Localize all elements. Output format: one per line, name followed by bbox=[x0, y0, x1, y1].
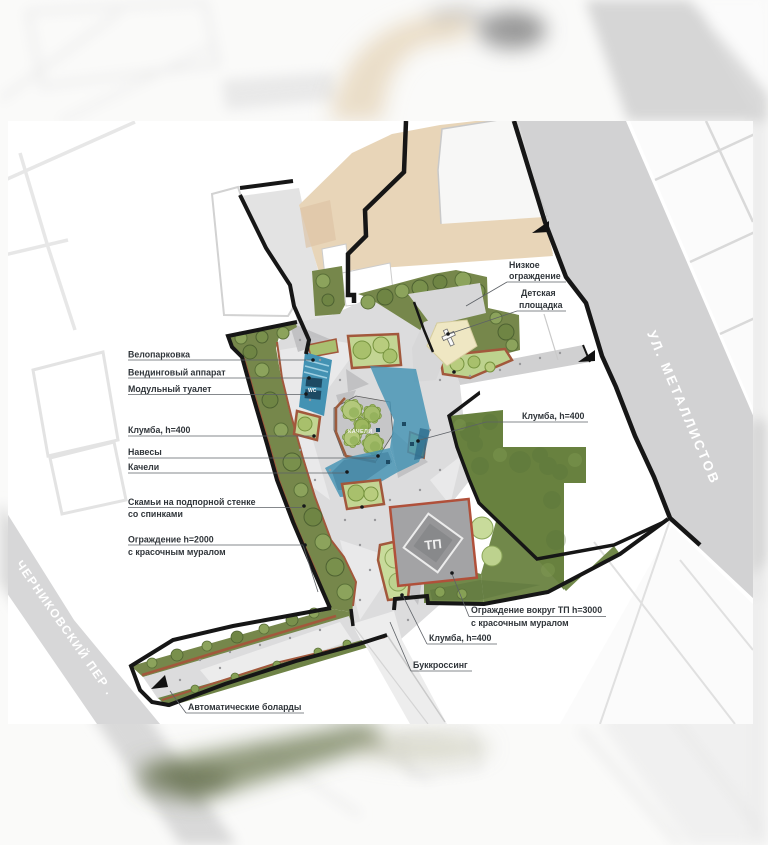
svg-text:Скамьи на подпорной стенке: Скамьи на подпорной стенке bbox=[128, 497, 256, 507]
svg-text:Велопарковка: Велопарковка bbox=[128, 350, 190, 360]
svg-text:Детская: Детская bbox=[521, 288, 556, 298]
svg-text:Качели: Качели bbox=[128, 462, 159, 472]
svg-text:ТП: ТП bbox=[424, 536, 443, 553]
svg-text:WC: WC bbox=[308, 388, 317, 394]
svg-text:Модульный туалет: Модульный туалет bbox=[128, 384, 212, 394]
svg-text:Клумба, h=400: Клумба, h=400 bbox=[522, 411, 585, 421]
svg-text:площадка: площадка bbox=[519, 300, 563, 310]
svg-text:ограждение: ограждение bbox=[509, 271, 561, 281]
svg-text:Низкое: Низкое bbox=[509, 260, 540, 270]
svg-text:Навесы: Навесы bbox=[128, 447, 162, 457]
svg-text:с красочным муралом: с красочным муралом bbox=[128, 547, 226, 557]
svg-text:Автоматические боларды: Автоматические боларды bbox=[188, 702, 301, 712]
svg-text:КАЧЕЛИ: КАЧЕЛИ bbox=[348, 429, 373, 435]
svg-text:Буккроссинг: Буккроссинг bbox=[413, 660, 468, 670]
svg-text:Клумба, h=400: Клумба, h=400 bbox=[429, 633, 492, 643]
svg-text:Клумба, h=400: Клумба, h=400 bbox=[128, 425, 191, 435]
svg-text:Ограждение вокруг ТП h=3000: Ограждение вокруг ТП h=3000 bbox=[471, 605, 602, 615]
svg-text:Ограждение h=2000: Ограждение h=2000 bbox=[128, 535, 214, 545]
svg-text:с красочным муралом: с красочным муралом bbox=[471, 618, 569, 628]
svg-text:Вендинговый аппарат: Вендинговый аппарат bbox=[128, 368, 226, 378]
svg-text:со спинками: со спинками bbox=[128, 509, 183, 519]
